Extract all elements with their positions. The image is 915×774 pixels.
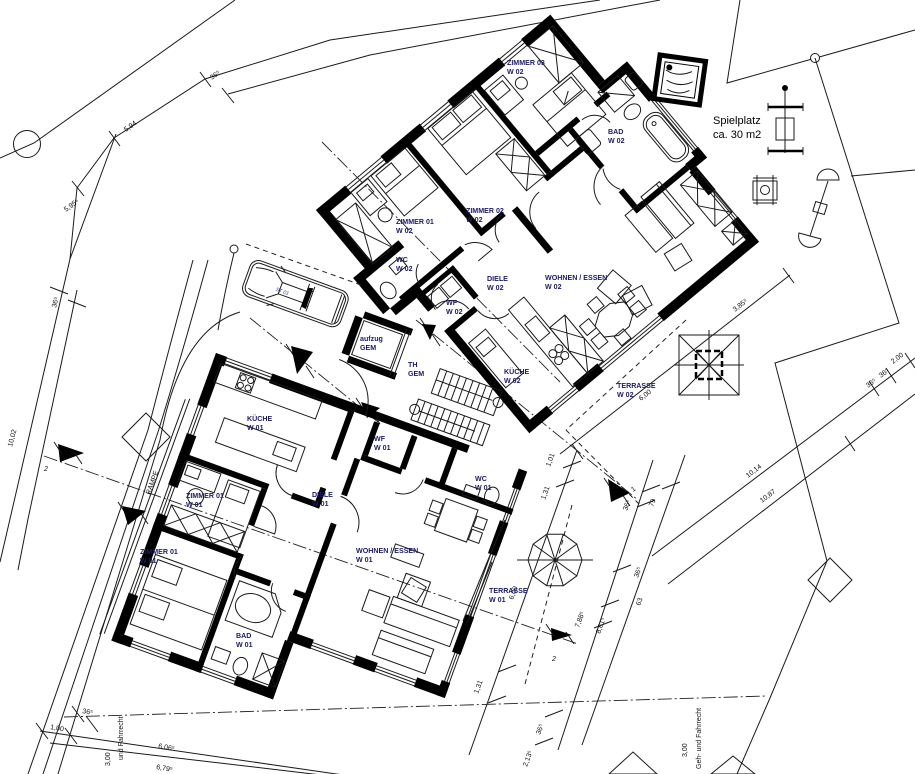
svg-text:KÜCHE: KÜCHE (247, 414, 272, 423)
svg-text:2: 2 (551, 656, 556, 663)
svg-text:WOHNEN / ESSEN: WOHNEN / ESSEN (545, 274, 607, 282)
svg-text:WOHNEN / ESSEN: WOHNEN / ESSEN (356, 547, 418, 555)
svg-text:TH: TH (408, 361, 417, 369)
svg-text:W 02: W 02 (507, 68, 524, 76)
svg-text:DIELE: DIELE (487, 275, 508, 283)
svg-text:W 01: W 01 (140, 557, 157, 565)
svg-text:WC: WC (396, 256, 408, 264)
svg-text:W 02: W 02 (608, 137, 625, 145)
svg-text:ca. 30 m2: ca. 30 m2 (713, 129, 761, 141)
svg-text:W 02: W 02 (396, 227, 413, 235)
svg-text:ZIMMER 01: ZIMMER 01 (140, 548, 178, 556)
svg-text:GEM: GEM (408, 370, 424, 378)
svg-text:W 02: W 02 (466, 216, 483, 224)
svg-text:W 02: W 02 (487, 284, 504, 292)
svg-text:W 02: W 02 (617, 391, 634, 399)
svg-text:und Fahrrecht: und Fahrrecht (118, 716, 125, 760)
svg-text:BAD: BAD (608, 128, 623, 136)
svg-text:W 01: W 01 (489, 596, 506, 604)
svg-text:W 01: W 01 (312, 500, 329, 508)
svg-text:W 01: W 01 (247, 424, 264, 432)
svg-text:W 02: W 02 (545, 283, 562, 291)
svg-text:W 02: W 02 (504, 377, 521, 385)
svg-text:KÜCHE: KÜCHE (504, 367, 529, 376)
svg-text:W 01: W 01 (475, 484, 492, 492)
svg-text:aufzug: aufzug (360, 335, 383, 343)
svg-text:Spielplatz: Spielplatz (713, 115, 761, 127)
svg-text:2: 2 (43, 466, 48, 473)
svg-text:W 02: W 02 (396, 265, 413, 273)
svg-text:W 01: W 01 (236, 641, 253, 649)
svg-text:ZIMMER 02: ZIMMER 02 (466, 207, 504, 215)
svg-text:ZIMMER 03: ZIMMER 03 (507, 59, 545, 67)
svg-text:Geh- und Fahrrecht: Geh- und Fahrrecht (696, 708, 703, 769)
svg-text:WF: WF (446, 299, 458, 307)
svg-text:TERRASSE: TERRASSE (489, 587, 528, 595)
svg-text:DIELE: DIELE (312, 491, 333, 499)
svg-text:WC: WC (475, 475, 487, 483)
svg-text:ZIMMER 01: ZIMMER 01 (396, 218, 434, 226)
svg-text:W 01: W 01 (186, 501, 203, 509)
svg-text:TERRASSE: TERRASSE (617, 382, 656, 390)
svg-text:W 01: W 01 (374, 444, 391, 452)
svg-text:WF: WF (374, 435, 386, 443)
svg-text:W 01: W 01 (356, 556, 373, 564)
svg-text:ZIMMER 01: ZIMMER 01 (186, 492, 224, 500)
svg-text:W 02: W 02 (446, 308, 463, 316)
svg-text:3,00: 3,00 (682, 743, 689, 757)
svg-text:BAD: BAD (236, 632, 251, 640)
svg-text:3,00: 3,00 (105, 752, 112, 766)
svg-text:GEM: GEM (360, 344, 376, 352)
